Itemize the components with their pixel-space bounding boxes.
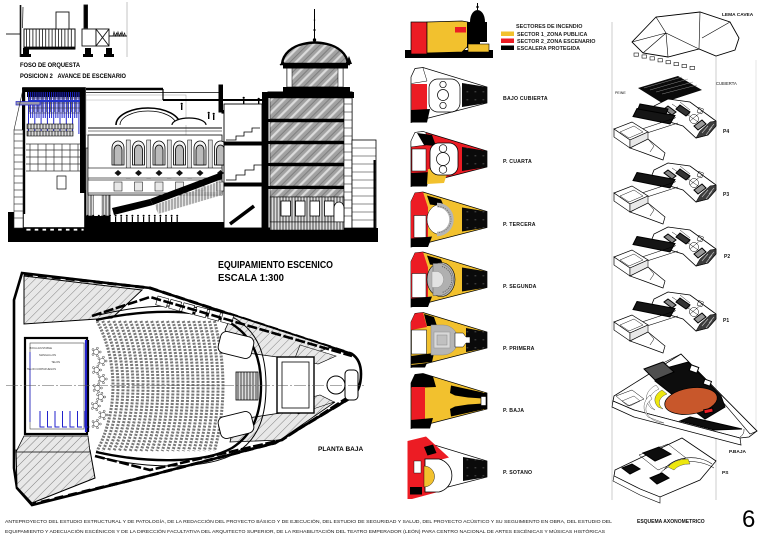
svg-text:CUBIERTA: CUBIERTA — [716, 81, 737, 86]
svg-text:P. SOTANO: P. SOTANO — [503, 470, 532, 476]
svg-text:P4: P4 — [723, 129, 729, 135]
svg-text:P.BAJA: P.BAJA — [729, 449, 747, 455]
svg-text:SECTOR 2_ZONA ESCENARIO: SECTOR 2_ZONA ESCENARIO — [517, 39, 595, 45]
svg-text:SECTOR 1_ZONA PUBLICA: SECTOR 1_ZONA PUBLICA — [517, 32, 587, 38]
svg-text:P2: P2 — [724, 254, 730, 260]
svg-text:EQUIPAMIENTO ESCENICO: EQUIPAMIENTO ESCENICO — [218, 259, 333, 271]
svg-text:P. TERCERA: P. TERCERA — [503, 222, 536, 228]
svg-text:LEMA CAVEA: LEMA CAVEA — [722, 12, 754, 18]
svg-text:EQUIPAMIENTO Y ADECUACIÓN ESCÉ: EQUIPAMIENTO Y ADECUACIÓN ESCÉNICOS Y DE… — [5, 528, 605, 534]
svg-text:P1: P1 — [723, 318, 729, 324]
svg-text:P. SEGUNDA: P. SEGUNDA — [503, 284, 537, 290]
svg-text:P. CUARTA: P. CUARTA — [503, 159, 532, 165]
svg-text:MANGLILLON: MANGLILLON — [39, 353, 56, 357]
svg-text:SECTORES DE INCENDIO: SECTORES DE INCENDIO — [516, 24, 582, 30]
svg-text:TELON CORTAFUEGOS: TELON CORTAFUEGOS — [27, 367, 56, 371]
svg-text:FOSO DE ORQUESTA: FOSO DE ORQUESTA — [20, 62, 80, 69]
svg-text:PEINE: PEINE — [615, 91, 626, 95]
svg-text:ESCALERA PROTEGIDA: ESCALERA PROTEGIDA — [517, 46, 580, 52]
svg-text:P. PRIMERA: P. PRIMERA — [503, 346, 535, 352]
svg-text:BAJO CUBIERTA: BAJO CUBIERTA — [503, 96, 548, 102]
svg-text:POSICION 2 AVANCE DE ESCENAR: POSICION 2 AVANCE DE ESCENARIO — [20, 73, 126, 80]
svg-text:ESQUEMA AXONOMETRICO: ESQUEMA AXONOMETRICO — [637, 519, 705, 525]
svg-text:BOCA AJUSTABLE: BOCA AJUSTABLE — [30, 346, 53, 350]
svg-text:P3: P3 — [723, 192, 729, 198]
svg-text:ESCALA 1:300: ESCALA 1:300 — [218, 272, 284, 284]
svg-text:6: 6 — [742, 506, 755, 533]
svg-text:PLANTA BAJA: PLANTA BAJA — [318, 446, 363, 453]
svg-text:TELON: TELON — [51, 360, 60, 364]
svg-text:PS: PS — [722, 470, 729, 476]
svg-text:P. BAJA: P. BAJA — [503, 408, 524, 414]
svg-text:ANTEPROYECTO DEL ESTUDIO ESTRU: ANTEPROYECTO DEL ESTUDIO ESTRUCTURAL Y D… — [5, 518, 612, 524]
